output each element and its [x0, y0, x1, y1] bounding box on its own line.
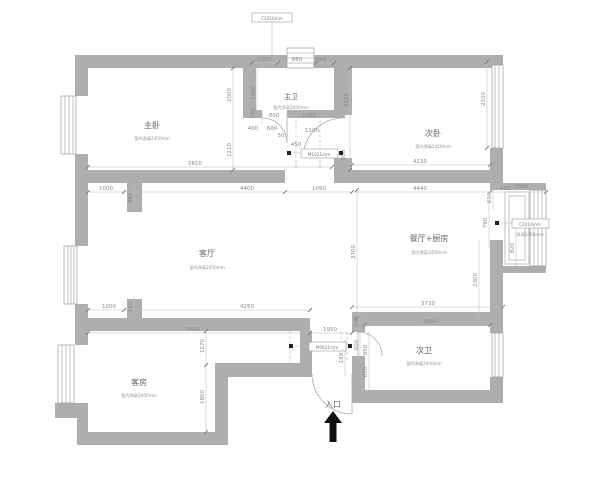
entrance-arrow-icon [324, 411, 342, 442]
tag-text-top-window: C1510mm [261, 16, 283, 21]
dim-label: 2300 [473, 273, 479, 287]
dim-label: 600 [354, 339, 360, 350]
dim-label: 110 [128, 301, 134, 312]
tag-text-entry-door: M0921mm [316, 345, 338, 350]
dim-label: 3730 [421, 301, 435, 307]
room-label-living: 客厅 [199, 248, 215, 258]
room-note-bedroom2: 室内净高2450mm [415, 143, 451, 150]
tag-sub-balcony: 净高2450mm [516, 231, 543, 238]
dim-label: 2000 [227, 88, 233, 102]
floor-plan-page: 1050 860 840 2000 1880 2100 2100 250 800… [0, 0, 600, 488]
wall-bath2-right-up [490, 326, 503, 333]
entrance-label: 入口 [325, 400, 341, 409]
dim-label: 1000 [99, 186, 113, 192]
dim-label: 400 [248, 126, 259, 132]
tag-text-balcony: C2410mm [519, 222, 541, 227]
dimension-lines [88, 22, 546, 432]
room-note-bath2: 室内净高2450mm [406, 360, 442, 367]
room-label-master-bedroom: 主卧 [144, 120, 160, 130]
dim-label: 2100 [344, 93, 350, 107]
dim-label: 1050 [257, 57, 271, 63]
room-label-master-bath: 主卫 [284, 92, 298, 101]
dim-label: 650 [363, 366, 369, 377]
dim-dot [495, 221, 499, 225]
room-label-bath2: 次卫 [416, 345, 432, 355]
wall-bath2-right-dn [490, 377, 503, 403]
dim-label: 1000 [514, 184, 528, 190]
dim-label: 610 [487, 192, 493, 203]
dim-label: 4230 [413, 159, 427, 165]
dim-label: 450 [291, 142, 302, 148]
dim-label: 3700 [351, 245, 357, 259]
wall-left-c [75, 304, 88, 345]
dim-label: 480 [128, 192, 134, 203]
dim-label: 1000 [102, 304, 116, 310]
dim-label: 800 [269, 113, 280, 119]
dim-label: 150 [339, 352, 345, 363]
dim-label: 5500 [186, 327, 200, 333]
wall-mid-left [88, 170, 285, 183]
tag-text-hall-door: M1021mm [308, 152, 330, 157]
dim-label: 840 [316, 57, 327, 63]
dim-label: 4400 [240, 186, 254, 192]
dim-label: 600 [267, 126, 278, 132]
dim-label: 1800 [200, 390, 206, 404]
room-note-dining-kitchen: 室内净高2450mm [411, 249, 447, 256]
room-note-guest: 室内净高2450mm [121, 392, 157, 399]
dim-label: 850 [363, 344, 369, 355]
dim-label: 250 [251, 107, 257, 118]
walls [55, 55, 546, 445]
window-bath2 [492, 333, 503, 377]
wall-left-b [75, 154, 88, 246]
wall-right-top [490, 55, 503, 65]
dim-label: 250 [354, 315, 360, 326]
wall-mid-right [352, 170, 503, 183]
wall-guest-bottom [77, 432, 228, 445]
dim-label: 1880 [251, 86, 257, 100]
dim-label: 1090 [312, 186, 326, 192]
door-arc-bath2 [358, 332, 382, 356]
dim-dot [339, 151, 343, 155]
wall-right-mid [490, 148, 503, 190]
room-label-guest: 客房 [131, 377, 147, 387]
dim-label: 50 [278, 133, 285, 139]
dim-label: 1300 [302, 113, 316, 119]
dim-label: 1950 [323, 327, 337, 333]
dim-label: 4440 [413, 186, 427, 192]
wall-guest-right [215, 375, 228, 445]
room-labels: 主卧 室内净高2450mm 主卫 室内净高2450mm 次卧 室内净高2450m… [121, 92, 451, 399]
dim-dot [289, 344, 293, 348]
dim-label: 1070 [200, 339, 206, 353]
wall-entry-top [215, 363, 312, 377]
wall-balcony-bottom [503, 266, 546, 273]
dim-label: 5610 [188, 161, 202, 167]
room-label-bedroom2: 次卧 [425, 128, 441, 138]
dim-label: 3550 [423, 319, 437, 325]
dim-dot [348, 344, 352, 348]
room-label-dining-kitchen: 餐厅+厨房 [410, 233, 449, 243]
wall-left-a [75, 68, 88, 96]
dim-label: 1210 [227, 143, 233, 157]
window-living [64, 246, 77, 304]
dimensions [86, 22, 548, 434]
room-note-master-bedroom: 室内净高2450mm [134, 135, 170, 142]
entrance: 入口 [324, 400, 342, 442]
dim-label: 4250 [240, 304, 254, 310]
window-bedroom2 [492, 65, 503, 148]
dim-dot [287, 151, 291, 155]
dim-label: 860 [292, 57, 303, 63]
room-note-living: 室内净高2450mm [189, 264, 225, 271]
floor-plan-canvas: 1050 860 840 2000 1880 2100 2100 250 800… [0, 0, 600, 488]
dim-label: 790 [483, 217, 489, 228]
dim-label: 450 [500, 186, 511, 192]
dim-label: 820 [510, 242, 516, 253]
room-note-master-bath: 室内净高2450mm [273, 104, 309, 111]
wall-bath2-bottom [352, 390, 503, 403]
dim-label: 1100 [305, 128, 319, 134]
dimension-labels: 1050 860 840 2000 1880 2100 2100 250 800… [99, 57, 528, 404]
window-master-bedroom [61, 96, 76, 154]
dim-label: 2100 [481, 92, 487, 106]
